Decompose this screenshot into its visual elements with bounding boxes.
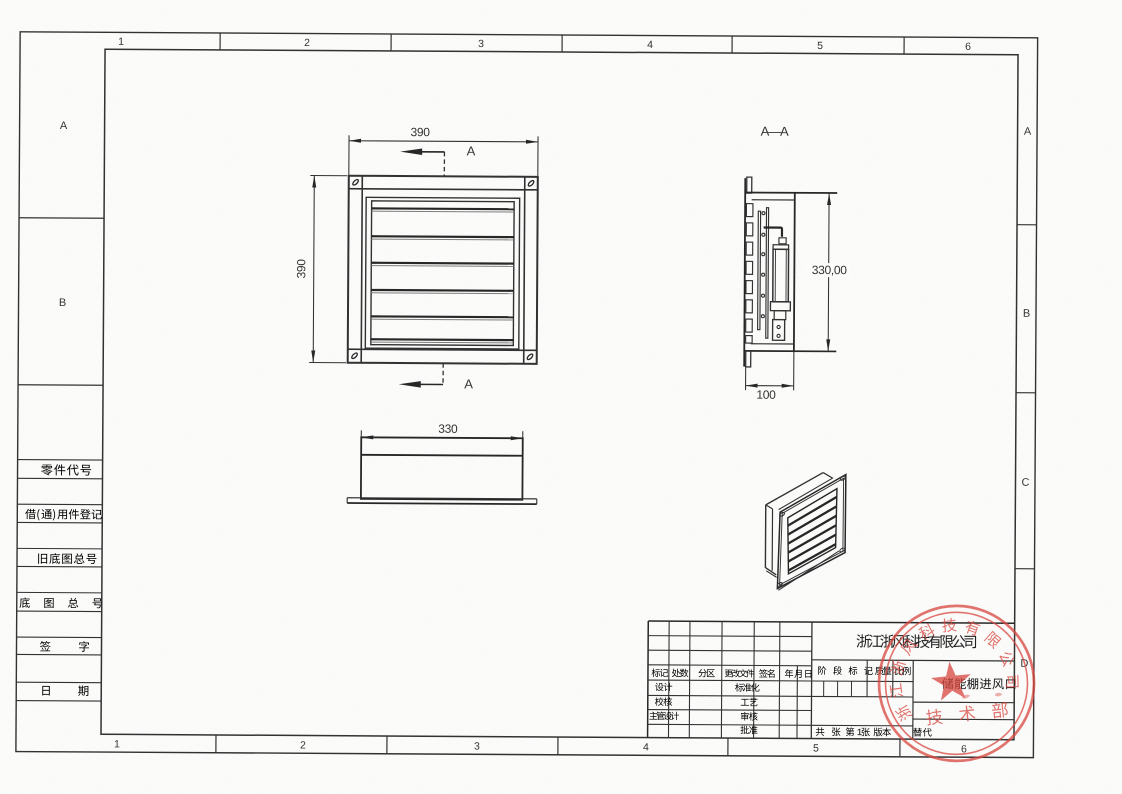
svg-text:4: 4 [647,39,653,51]
svg-text:390: 390 [294,259,308,279]
svg-text:2: 2 [300,739,306,751]
svg-text:100: 100 [756,388,776,402]
svg-text:A—A: A—A [761,124,789,139]
svg-text:330,00: 330,00 [812,263,848,277]
svg-text:390: 390 [410,125,430,139]
svg-text:6: 6 [965,41,971,53]
svg-text:5: 5 [813,743,819,755]
svg-text:2: 2 [304,37,310,49]
svg-text:C: C [1021,477,1029,489]
svg-text:3: 3 [474,740,480,752]
svg-text:A: A [467,143,476,158]
svg-text:5: 5 [817,40,823,52]
svg-text:1: 1 [857,727,862,737]
svg-text:B: B [1023,308,1030,320]
svg-text:A: A [464,376,473,391]
svg-text:B: B [59,297,66,309]
svg-text:1: 1 [118,36,124,48]
svg-text:1: 1 [114,738,120,750]
svg-text:A: A [60,120,68,132]
svg-text:A: A [1024,126,1032,138]
svg-text:3: 3 [478,38,484,50]
svg-text:330: 330 [438,422,458,436]
svg-text:4: 4 [643,741,649,753]
